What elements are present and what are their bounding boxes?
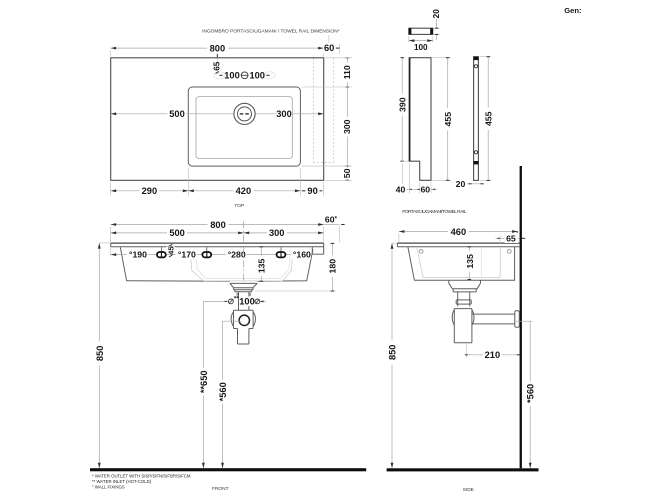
svg-text:455: 455	[483, 111, 493, 126]
svg-text:460: 460	[451, 227, 467, 237]
svg-text:INGOMBRO PORTASCIUGAMANI / TOW: INGOMBRO PORTASCIUGAMANI / TOWEL RAIL DI…	[202, 29, 339, 35]
svg-text:Gen:: Gen:	[564, 6, 581, 15]
svg-text:390: 390	[398, 97, 408, 112]
svg-text:100: 100	[224, 71, 240, 81]
svg-text:300: 300	[342, 119, 352, 134]
svg-text:* WATER OUTLET WITH SISP/SIFN: * WATER OUTLET WITH SISP/SIFN/SIFBR/SIFC…	[92, 473, 191, 478]
svg-text:300: 300	[276, 109, 292, 119]
svg-text:°280: °280	[228, 250, 246, 260]
svg-text:SIDE: SIDE	[463, 487, 474, 493]
svg-text:500: 500	[169, 228, 185, 238]
svg-text:100: 100	[249, 71, 265, 81]
svg-text:50: 50	[342, 168, 352, 178]
svg-text:°160: °160	[293, 250, 311, 260]
svg-text:100: 100	[414, 43, 428, 52]
svg-text:40: 40	[396, 184, 406, 194]
svg-text:20: 20	[456, 179, 466, 189]
svg-text:60: 60	[420, 184, 430, 194]
svg-text:°190: °190	[129, 250, 147, 260]
svg-text:20: 20	[432, 9, 441, 19]
svg-text:65: 65	[506, 233, 516, 243]
svg-text:135: 135	[465, 254, 475, 269]
svg-text:210: 210	[485, 350, 501, 360]
svg-text:°170: °170	[178, 250, 196, 260]
svg-text:300: 300	[269, 228, 285, 238]
svg-text:850: 850	[95, 346, 105, 362]
svg-text:° WALL FIXINGS: ° WALL FIXINGS	[92, 485, 125, 490]
svg-text:**650: **650	[199, 370, 209, 393]
svg-text:420: 420	[236, 186, 252, 196]
svg-text:65: 65	[212, 61, 221, 71]
svg-text:** WATER INLET (HOT-COLD): ** WATER INLET (HOT-COLD)	[92, 479, 152, 484]
svg-text:90: 90	[307, 186, 317, 196]
svg-text:135: 135	[257, 258, 267, 273]
svg-text:180: 180	[328, 259, 338, 274]
svg-text:100: 100	[239, 297, 255, 307]
svg-text:850: 850	[387, 345, 397, 361]
svg-text:290: 290	[142, 186, 158, 196]
svg-text:800: 800	[210, 43, 226, 53]
svg-text:110: 110	[342, 65, 352, 79]
svg-text:*560: *560	[526, 384, 536, 403]
svg-text:60: 60	[324, 43, 334, 53]
svg-text:°: °	[516, 231, 518, 237]
svg-text:800: 800	[210, 220, 226, 230]
svg-text:45: 45	[166, 246, 175, 255]
svg-text:PORTASCIUGAMANI/TOWEL RAIL: PORTASCIUGAMANI/TOWEL RAIL	[402, 209, 466, 215]
svg-text:500: 500	[169, 109, 185, 119]
svg-text:*560: *560	[218, 382, 228, 401]
svg-text:455: 455	[443, 112, 453, 127]
svg-text:FRONT: FRONT	[212, 486, 229, 492]
svg-text:TOP: TOP	[234, 203, 244, 209]
